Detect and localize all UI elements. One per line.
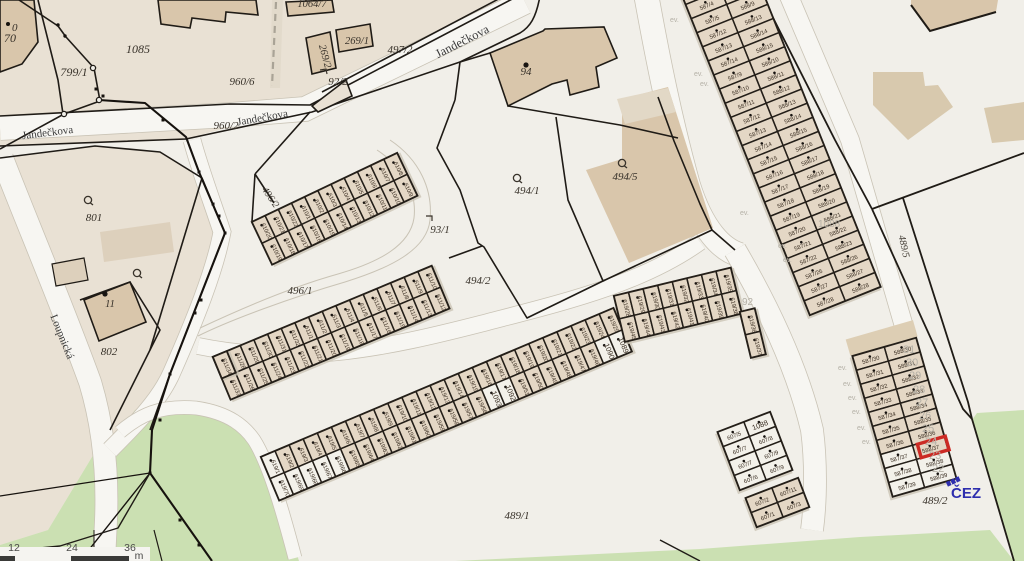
svg-text:ev.: ev. <box>783 257 792 264</box>
svg-text:494/1: 494/1 <box>514 185 539 197</box>
svg-text:24: 24 <box>925 436 937 448</box>
svg-text:92: 92 <box>742 297 754 308</box>
svg-text:1088: 1088 <box>818 219 841 230</box>
svg-text:12: 12 <box>8 542 20 554</box>
svg-text:23: 23 <box>929 450 941 462</box>
svg-text:22: 22 <box>932 463 944 475</box>
svg-text:269/1: 269/1 <box>345 36 369 47</box>
svg-text:27: 27 <box>916 397 928 409</box>
svg-text:m: m <box>135 550 144 561</box>
svg-text:ev.: ev. <box>857 425 866 432</box>
svg-text:489/2: 489/2 <box>922 495 948 507</box>
svg-text:31: 31 <box>903 344 915 356</box>
svg-text:ev.: ev. <box>838 365 847 372</box>
svg-text:92/2: 92/2 <box>328 76 348 88</box>
svg-text:24: 24 <box>66 542 78 554</box>
svg-text:799/1: 799/1 <box>60 65 87 79</box>
svg-text:93/1: 93/1 <box>430 224 450 236</box>
svg-text:ev.: ev. <box>843 381 852 388</box>
svg-text:802: 802 <box>101 346 118 358</box>
svg-text:801: 801 <box>86 212 103 224</box>
svg-text:ČEZ: ČEZ <box>951 484 981 502</box>
svg-text:26: 26 <box>919 410 931 422</box>
svg-text:494/2: 494/2 <box>465 275 491 287</box>
svg-text:1064/7: 1064/7 <box>297 0 327 10</box>
svg-text:960/2: 960/2 <box>213 120 239 132</box>
svg-text:ev.: ev. <box>740 210 749 217</box>
svg-text:ev.: ev. <box>848 395 857 402</box>
svg-text:489/1: 489/1 <box>504 510 529 522</box>
svg-text:ev.: ev. <box>670 17 679 24</box>
svg-text:1085: 1085 <box>126 42 150 56</box>
svg-text:496/1: 496/1 <box>287 285 312 297</box>
svg-text:28: 28 <box>913 384 925 396</box>
svg-text:ev.: ev. <box>862 439 871 446</box>
svg-text:494/5: 494/5 <box>612 171 638 183</box>
svg-text:30: 30 <box>906 357 918 369</box>
svg-text:11: 11 <box>105 299 115 310</box>
svg-text:497/2: 497/2 <box>387 44 413 56</box>
svg-text:ev.: ev. <box>694 71 703 78</box>
svg-text:ev.: ev. <box>778 243 787 250</box>
svg-text:29: 29 <box>909 370 921 382</box>
svg-text:960/6: 960/6 <box>229 76 255 88</box>
svg-text:25: 25 <box>922 423 934 435</box>
svg-text:70: 70 <box>4 31 16 45</box>
svg-text:ev.: ev. <box>700 81 709 88</box>
svg-text:ev.: ev. <box>852 409 861 416</box>
